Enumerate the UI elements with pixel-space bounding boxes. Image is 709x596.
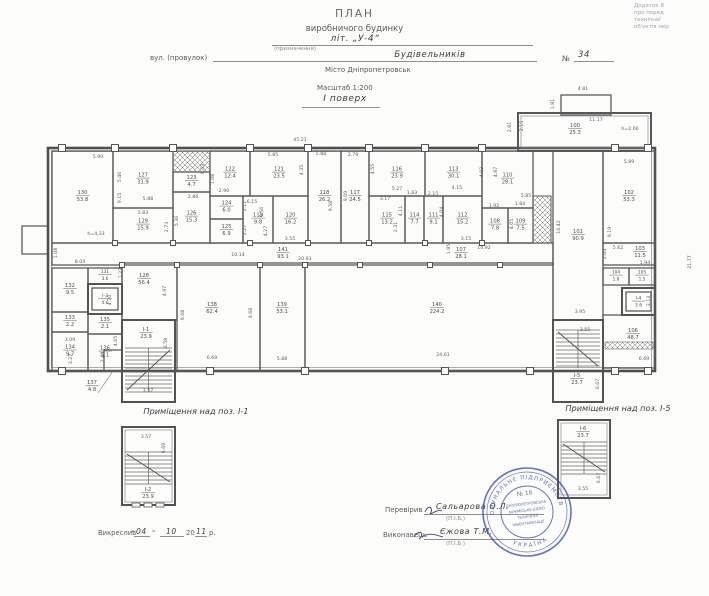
room-area: 23.7	[577, 433, 589, 439]
room-area: 15.9	[137, 226, 149, 232]
room-number: 140	[432, 302, 442, 308]
dimension-label: 4.35	[299, 165, 305, 175]
wall-pilaster	[247, 145, 254, 152]
room-area: 1.8	[613, 277, 620, 283]
room-area: 93.1	[277, 254, 289, 260]
wall-pilaster	[171, 241, 176, 246]
wall-pilaster	[112, 145, 119, 152]
dimension-label: 3.57	[141, 434, 151, 440]
wall-pilaster	[612, 145, 619, 152]
dimension-label: 9.19	[607, 227, 613, 237]
dimension-label: 1.81	[550, 99, 556, 109]
dimension-label: 5.36	[174, 216, 180, 226]
pib-caption: (П.І.Б.)	[446, 516, 465, 522]
dimension-label: 6.69	[161, 443, 167, 453]
executor-label: Виконавець	[383, 531, 427, 539]
wall-pilaster	[248, 241, 253, 246]
wall-pilaster	[303, 263, 308, 268]
room-number: 124	[222, 201, 233, 207]
dimension-label: 3.55	[285, 236, 295, 242]
room-number: 116	[392, 167, 402, 173]
dimension-label: 3.55	[578, 486, 588, 492]
wall-pilaster	[113, 241, 118, 246]
detail-window-tick	[132, 503, 140, 507]
dimension-label: 4.81	[578, 86, 588, 92]
dimension-label: 2.04	[602, 249, 608, 259]
wall-pilaster	[358, 263, 363, 268]
room-area: 90.9	[572, 236, 584, 242]
room-number: 125	[222, 224, 232, 230]
room-number: 108	[490, 219, 500, 225]
dimension-label: 1.08	[210, 174, 216, 184]
executor-name: Єжова Т.М.	[440, 527, 493, 536]
dimension-label: 2.73	[164, 222, 170, 232]
dimension-label: 1.83	[407, 190, 417, 196]
room-number: 110	[503, 173, 513, 179]
dimension-label: 9.68	[180, 310, 186, 320]
month-underline	[160, 536, 184, 537]
room-area: 24.5	[349, 197, 361, 203]
dimension-label: 2.11	[242, 201, 248, 211]
wall-pilaster	[207, 368, 214, 375]
day-underline	[134, 536, 150, 537]
wall-pilaster	[175, 263, 180, 268]
dimension-label: 5.89	[624, 159, 634, 165]
dimension-label: 14.92	[477, 245, 490, 251]
dimension-label: 5.88	[143, 196, 153, 202]
dimension-label: 20.81	[298, 256, 311, 262]
dimension-label: 8.04	[75, 259, 85, 265]
room-number: І-6	[580, 426, 587, 432]
dimension-label: 2.90	[219, 188, 229, 194]
dimension-label: 6.67	[596, 473, 602, 483]
wall-pilaster	[612, 368, 619, 375]
hatch-strip	[605, 342, 653, 349]
room-number: 134	[65, 345, 76, 351]
wall-pilaster	[479, 145, 486, 152]
dimension-label: 6.69	[207, 355, 217, 361]
dimension-label: 4.11	[398, 206, 404, 216]
room-area: 7.7	[410, 220, 418, 226]
room-area: 6.0	[222, 208, 230, 214]
room-number: 131	[101, 269, 109, 275]
wall-pilaster	[120, 263, 125, 268]
dimension-label: 3.27	[68, 354, 74, 364]
dimension-label: 5.90	[93, 154, 103, 160]
room-number: 117	[350, 190, 360, 196]
room-area: 53.3	[623, 197, 635, 203]
room-area: 48.7	[627, 335, 639, 341]
dimension-label: 4.55	[370, 164, 376, 174]
dimension-label: 4.70	[107, 295, 113, 305]
dimension-label: h=4,33	[87, 231, 104, 237]
room-number: І-2	[145, 487, 152, 493]
room-number: 112	[458, 213, 468, 219]
room-area: 28.1	[502, 180, 514, 186]
room-area: 11.5	[634, 253, 646, 259]
dimension-label: 3.17	[380, 196, 390, 202]
dimension-label: 2.79	[348, 152, 358, 158]
room-number: 137	[87, 380, 97, 386]
dimension-label: 1.27	[118, 268, 124, 278]
room-area: 9.8	[254, 220, 262, 226]
room-139	[260, 263, 305, 371]
stair-hatch-right	[533, 196, 551, 243]
room-area: 53.8	[77, 197, 89, 203]
wall-pilaster	[422, 145, 429, 152]
checked-name: Сальарова О.Л.	[436, 502, 509, 511]
room-area: 23.7	[571, 380, 583, 386]
room-area: 16.2	[285, 220, 297, 226]
wall-pilaster	[366, 145, 373, 152]
dimension-label: 2.86	[188, 194, 198, 200]
dimension-label: 3.15	[461, 236, 471, 242]
wall-pilaster	[170, 145, 177, 152]
dimension-label: 4.65	[113, 336, 119, 346]
room-area: 2.1	[101, 324, 109, 330]
room-area: 56.4	[138, 280, 150, 286]
dimension-label: 5.85	[521, 193, 531, 199]
room-area: 15.3	[186, 218, 198, 224]
room-number: І-1	[143, 327, 150, 333]
room-number: 105	[638, 270, 646, 276]
wall-pilaster	[302, 368, 309, 375]
room-area: 1.5	[639, 277, 646, 283]
dimension-label: 2.31	[393, 222, 399, 232]
wall-pilaster	[59, 368, 66, 375]
room-number: 126	[187, 211, 197, 217]
dimension-label: 2.81	[507, 122, 513, 132]
dimension-label: 9.68	[248, 308, 254, 318]
room-area: 12.4	[224, 174, 236, 180]
room-area: 224.2	[430, 309, 445, 315]
room-area: 7.8	[491, 226, 499, 232]
dimension-label: 4.27	[263, 226, 269, 236]
room-area: 25.3	[569, 130, 581, 136]
room-number: І-5	[574, 373, 581, 379]
wall-pilaster	[442, 368, 449, 375]
room-number: 135	[100, 317, 110, 323]
dimension-label: 5.88	[316, 151, 326, 157]
dimension-label: 2.15	[519, 121, 525, 131]
detail-caption: Приміщення над поз. І-5	[565, 403, 670, 413]
room-number: 115	[382, 213, 392, 219]
dimension-label: 5.83	[138, 210, 148, 216]
detail-window-tick	[156, 503, 164, 507]
dimension-label: 1.08	[53, 248, 59, 258]
dimension-label: 3.13	[646, 296, 652, 306]
dimension-label: 6.15	[247, 199, 257, 205]
wall-pilaster	[498, 263, 503, 268]
drawn-year: 11	[196, 527, 207, 536]
porch-outline	[22, 226, 48, 254]
wall-pilaster	[527, 368, 534, 375]
room-number: 114	[410, 213, 421, 219]
room-number: 103	[635, 246, 645, 252]
room-number: 104	[612, 270, 620, 276]
drawn-day: 04	[136, 527, 147, 536]
wall-pilaster	[258, 263, 263, 268]
dimension-label: 9.15	[117, 193, 123, 203]
wall-pilaster	[59, 145, 66, 152]
wall-pilaster	[428, 263, 433, 268]
room-area: 3.6	[635, 303, 642, 309]
elevator-cab-І-3	[92, 288, 118, 310]
room-number: 130	[78, 190, 88, 196]
dimension-label: 6.69	[639, 356, 649, 362]
room-number: 101	[573, 229, 583, 235]
room-area: 9.1	[429, 220, 437, 226]
floor-plan-svg: 13053.812731.912915.91234.712615.312212.…	[0, 0, 709, 573]
room-area: 23.9	[391, 174, 403, 180]
dimension-label: 5.85	[268, 152, 278, 158]
room-number: 113	[449, 167, 459, 173]
dimension-label: 2.43	[100, 352, 106, 362]
room-number: 107	[456, 247, 466, 253]
room-100	[518, 113, 651, 151]
dimension-label: 21.77	[687, 255, 693, 268]
room-area: 30.1	[448, 174, 460, 180]
room-area: 13.2	[381, 220, 393, 226]
dimension-label: 1.92	[489, 203, 499, 209]
dimension-label: 9.56	[259, 207, 265, 217]
dimension-label: 1.95	[446, 244, 452, 254]
room-number: 138	[207, 302, 217, 308]
dimension-label: 5.88	[277, 356, 287, 362]
room-128	[122, 263, 177, 320]
room-number: 128	[139, 273, 149, 279]
room-area: 7.5	[516, 226, 524, 232]
dimension-label: 11.17	[589, 117, 602, 123]
room-area: 23.5	[273, 174, 285, 180]
room-area: 3.6	[102, 276, 109, 282]
room-area: 4.7	[187, 182, 195, 188]
wall-pilaster	[305, 145, 312, 152]
dimension-label: 1.94	[640, 260, 650, 266]
room-area: 53.1	[276, 309, 288, 315]
quote-mark: "	[152, 529, 155, 537]
wall-pilaster	[423, 241, 428, 246]
room-number: 133	[65, 315, 75, 321]
room-number: 100	[570, 123, 580, 129]
dimension-label: 5.27	[392, 186, 402, 192]
room-number: 123	[187, 175, 197, 181]
room-number: І-4	[636, 296, 642, 302]
room-140	[305, 263, 553, 371]
dimension-label: 5.46	[117, 172, 123, 182]
room-number: 111	[429, 213, 439, 219]
label-leader-line	[98, 371, 113, 393]
dimension-label: 45.21	[293, 137, 306, 143]
dimension-label: 4.87	[493, 167, 499, 177]
wall-pilaster	[645, 368, 652, 375]
detail-window-tick	[144, 503, 152, 507]
dimension-label: 3.95	[575, 309, 585, 315]
drawn-month: 10	[166, 527, 177, 536]
room-number: 132	[65, 283, 75, 289]
dimension-label: 9.58	[328, 201, 334, 211]
wall-pilaster	[645, 145, 652, 152]
room-number: 120	[286, 213, 296, 219]
executor-underline	[424, 539, 544, 540]
room-number: 118	[320, 190, 330, 196]
dimension-label: 4.15	[452, 185, 462, 191]
room-area: 23.9	[140, 334, 152, 340]
year-underline	[195, 536, 207, 537]
wall-pilaster	[367, 241, 372, 246]
room-number: 109	[516, 219, 526, 225]
dimension-label: 4.05	[509, 219, 515, 229]
room-number: 141	[278, 247, 288, 253]
room-138	[177, 263, 260, 371]
dimension-label: h=2.60	[621, 126, 638, 132]
dimension-label: 6.58	[163, 338, 169, 348]
detail-caption: Приміщення над поз. І-1	[143, 406, 248, 416]
room-area: 2.2	[66, 322, 74, 328]
room-area: 15.2	[457, 220, 469, 226]
dimension-label: 6.67	[595, 379, 601, 389]
dimension-label: 4.93	[479, 167, 485, 177]
checked-underline	[424, 514, 544, 515]
room-number: 121	[274, 167, 284, 173]
dimension-label: 1.84	[515, 201, 525, 207]
dimension-label: 4.04	[439, 207, 445, 217]
pib-caption: (П.І.Б.)	[446, 541, 465, 547]
dimension-label: 10.14	[231, 252, 244, 258]
room-area: 28.1	[455, 254, 467, 260]
dimension-label: 16.42	[556, 220, 562, 233]
wall-pilaster	[306, 241, 311, 246]
room-number: 102	[624, 190, 634, 196]
dimension-label: 4.97	[162, 286, 168, 296]
dimension-label: 3.55	[580, 327, 590, 333]
year-suffix: р.	[209, 529, 215, 537]
room-area: 62.4	[206, 309, 218, 315]
dimension-label: 2.15	[428, 191, 438, 197]
scanned-floor-plan-page: { "appendix": {"lines": ["Додаток 8", "п…	[0, 0, 709, 573]
room-area: 6.9	[222, 231, 230, 237]
wall-pilaster	[480, 241, 485, 246]
room-area: 9.5	[66, 290, 74, 296]
room-number: 139	[277, 302, 287, 308]
room-number: 122	[225, 167, 235, 173]
room-number: 127	[138, 173, 148, 179]
dimension-label: 3.57	[143, 388, 153, 394]
annex-outline	[518, 113, 651, 151]
year-prefix: 20	[186, 529, 195, 537]
dimension-label: 9.63	[200, 164, 206, 174]
dimension-label: 2.27	[242, 225, 248, 235]
dimension-label: 24.61	[436, 352, 449, 358]
dimension-label: 3.09	[65, 337, 75, 343]
room-number: 129	[138, 219, 148, 225]
checked-label: Перевірив	[385, 506, 423, 514]
dimension-label: 9.09	[343, 191, 349, 201]
room-area: 4.8	[88, 387, 96, 393]
room-number: 106	[628, 328, 638, 334]
dimension-label: 5.62	[613, 245, 623, 251]
room-area: 31.9	[137, 180, 149, 186]
room-area: 23.9	[142, 494, 154, 500]
